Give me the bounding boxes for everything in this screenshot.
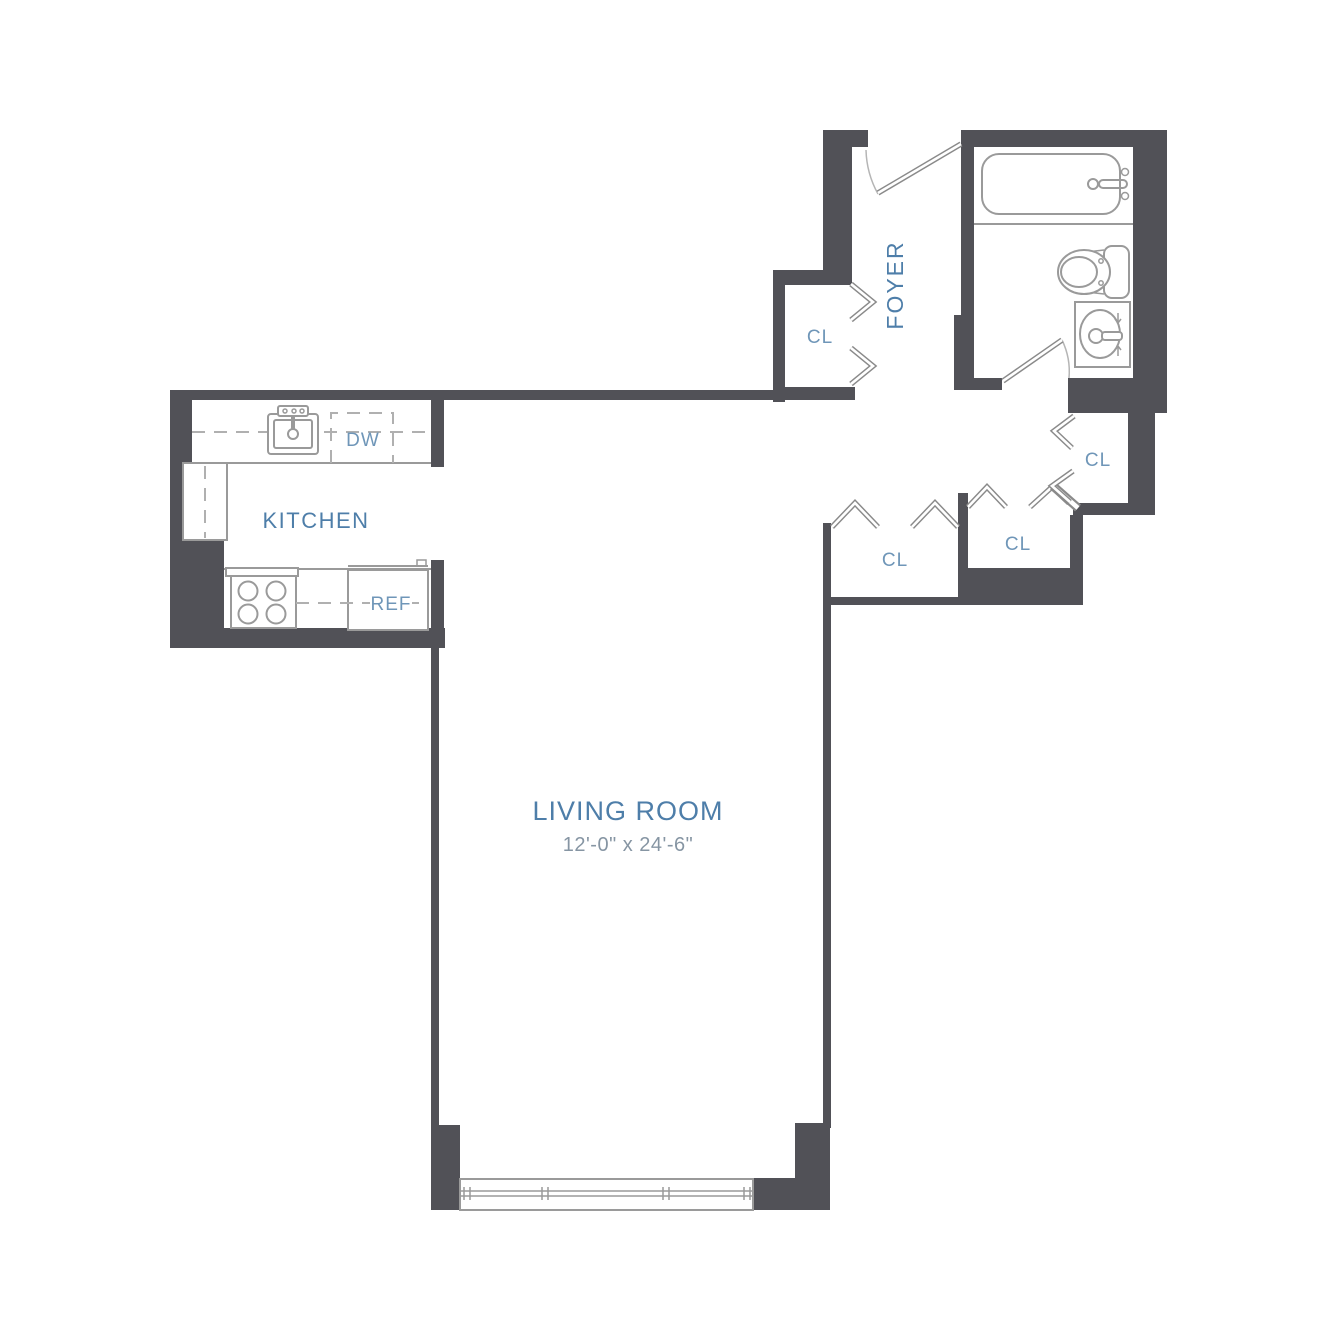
wall-segment <box>170 540 224 630</box>
walls <box>170 130 1167 1210</box>
floor-plan: KITCHEN DW REF FOYER CL CL CL CL LIVING … <box>0 0 1344 1344</box>
closet-label: CL <box>807 327 833 348</box>
bathroom-door-icon <box>1003 340 1069 381</box>
wall-segment <box>1128 413 1155 505</box>
closet-label: CL <box>882 550 908 571</box>
wall-segment <box>431 395 444 467</box>
wall-segment <box>795 1123 830 1180</box>
wall-segment <box>823 523 831 1128</box>
toilet-icon <box>1058 246 1129 298</box>
kitchen-sink-icon <box>268 406 318 454</box>
refrigerator-label: REF <box>371 594 412 615</box>
wall-segment <box>954 378 1002 390</box>
wall-segment <box>961 147 974 315</box>
wall-segment <box>823 130 852 282</box>
kitchen-label: KITCHEN <box>262 508 369 533</box>
wall-segment <box>961 130 1167 147</box>
bifold-door-icon <box>851 284 873 384</box>
living-room-window-icon <box>460 1179 753 1210</box>
wall-segment <box>170 390 855 400</box>
bifold-door-icon <box>832 503 958 527</box>
wall-segment <box>431 648 439 1125</box>
wall-segment <box>1133 147 1167 413</box>
wall-segment <box>958 568 1083 605</box>
wall-segment <box>753 1178 830 1210</box>
wall-segment <box>170 390 192 463</box>
range-stove-icon <box>226 568 298 628</box>
foyer-label: FOYER <box>882 240 908 329</box>
floor-plan-svg: KITCHEN DW REF FOYER CL CL CL CL LIVING … <box>0 0 1344 1344</box>
entry-door-icon <box>866 144 961 194</box>
dishwasher-label: DW <box>346 430 380 451</box>
wall-segment <box>170 463 183 540</box>
closet-label: CL <box>1085 450 1111 471</box>
wall-segment <box>1068 378 1167 413</box>
wall-segment <box>1073 503 1155 515</box>
bathroom-fixtures <box>974 154 1133 367</box>
bathtub-icon <box>982 154 1129 214</box>
wall-segment <box>431 560 444 630</box>
wall-segment <box>773 270 785 402</box>
living-room-label: LIVING ROOM <box>532 796 723 826</box>
living-room-dimensions: 12'-0" x 24'-6" <box>563 834 694 856</box>
vanity-sink-icon <box>1075 302 1130 367</box>
wall-segment <box>823 597 958 605</box>
wall-segment <box>1070 515 1083 568</box>
closet-label: CL <box>1005 534 1031 555</box>
wall-segment <box>958 493 968 568</box>
wall-segment <box>431 1125 460 1210</box>
labels: KITCHEN DW REF FOYER CL CL CL CL LIVING … <box>262 240 1111 856</box>
pantry-cabinet-icon <box>183 463 227 540</box>
